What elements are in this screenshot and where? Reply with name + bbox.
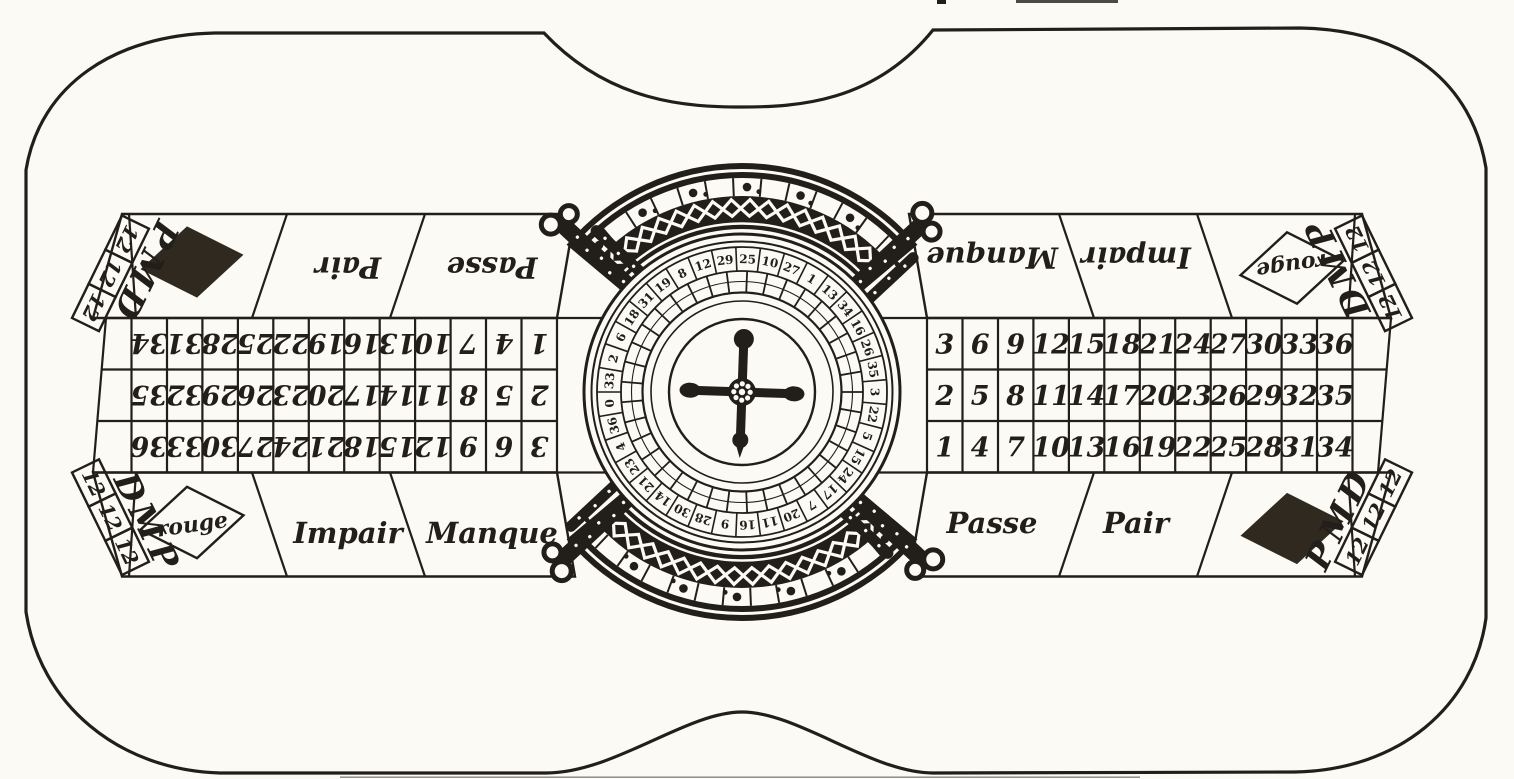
grid-number: 1 xyxy=(935,433,954,464)
pair-label: Pair xyxy=(1102,506,1172,540)
grid-number: 34 xyxy=(130,327,168,358)
betting-layout-left: 3431282522191613107413532292623201714118… xyxy=(72,202,575,588)
grid-number: 11 xyxy=(1032,381,1070,412)
grid-number: 31 xyxy=(166,327,204,358)
manque-label: Manque xyxy=(926,241,1059,275)
grid-number: 18 xyxy=(1103,330,1141,361)
grid-number: 28 xyxy=(201,327,240,358)
grid-number: 6 xyxy=(494,430,513,461)
grid-number: 7 xyxy=(1006,433,1025,464)
grid-number: 19 xyxy=(1139,433,1177,464)
impair-label: Impair xyxy=(1078,241,1191,275)
wheel-number: 33 xyxy=(602,372,617,390)
bowl-ornament-dot xyxy=(624,554,629,559)
grid-number: 3 xyxy=(935,330,954,361)
bowl-ornament-dot xyxy=(630,562,639,571)
grid-number: 8 xyxy=(1005,381,1025,412)
bowl-ornament-dot xyxy=(855,225,860,230)
grid-number: 26 xyxy=(237,379,276,410)
scan-artifact xyxy=(937,0,946,4)
grid-number: 9 xyxy=(1006,330,1025,361)
turret-arm xyxy=(755,392,786,393)
bowl-ornament-dot xyxy=(826,571,831,576)
bowl-ornament-dot xyxy=(787,587,796,596)
grid-number: 15 xyxy=(1068,330,1106,361)
grid-number: 16 xyxy=(343,327,381,358)
grid-number: 23 xyxy=(1173,381,1212,412)
bowl-ornament-dot xyxy=(703,192,708,197)
grid-number: 13 xyxy=(1068,433,1106,464)
grid-number: 16 xyxy=(1103,433,1141,464)
wheel-number: 9 xyxy=(720,516,730,531)
bowl-ornament-dot xyxy=(723,590,728,595)
grid-number: 14 xyxy=(379,379,417,410)
grid-number: 19 xyxy=(308,327,346,358)
turret-arm xyxy=(742,346,743,379)
grid-number: 27 xyxy=(1209,330,1248,361)
grid-number: 36 xyxy=(130,430,168,461)
grid-number: 3 xyxy=(530,430,549,461)
grid-number: 22 xyxy=(1173,433,1212,464)
bowl-ornament-dot xyxy=(743,183,752,192)
grid-number: 33 xyxy=(166,430,204,461)
grid-number: 31 xyxy=(1281,433,1319,464)
grid-number: 10 xyxy=(414,327,452,358)
grid-number: 25 xyxy=(1209,433,1248,464)
grid-number: 2 xyxy=(530,379,550,410)
wheel-number: 25 xyxy=(739,252,756,267)
grid-number: 20 xyxy=(308,379,347,410)
grid-number: 1 xyxy=(530,327,549,358)
turret-arm xyxy=(698,390,729,391)
grid-number: 20 xyxy=(1138,381,1177,412)
grid-number: 24 xyxy=(272,430,311,461)
roulette-table-engraving: 3431282522191613107413532292623201714118… xyxy=(0,0,1514,779)
number-pocket-divider xyxy=(736,247,737,271)
bowl-ornament-dot xyxy=(808,201,813,206)
grid-number: 9 xyxy=(459,430,478,461)
grid-number: 7 xyxy=(459,327,478,358)
bowl-ornament-dot xyxy=(689,189,698,198)
grid-number: 8 xyxy=(459,379,479,410)
bowl-cell-divider xyxy=(733,178,734,196)
scan-artifact xyxy=(340,776,1140,778)
turret-arm xyxy=(741,405,742,434)
grid-number: 22 xyxy=(272,327,311,358)
grid-number: 30 xyxy=(1245,330,1283,361)
grid-number: 25 xyxy=(237,327,276,358)
grid-number: 17 xyxy=(1103,381,1141,412)
wheel-number: 16 xyxy=(739,517,756,532)
wheel-number: 22 xyxy=(864,405,881,424)
bowl-ornament-dot xyxy=(733,593,742,602)
betting-layout-right: 3431282522191613107413532292623201714118… xyxy=(909,202,1412,588)
grid-number: 23 xyxy=(272,379,311,410)
bowl-ornament-dot xyxy=(653,208,658,213)
bowl-ornament-dot xyxy=(679,584,688,593)
number-pocket-divider xyxy=(736,513,737,537)
grid-number: 5 xyxy=(494,379,513,410)
scan-artifact xyxy=(1016,0,1118,3)
grid-number: 15 xyxy=(379,430,417,461)
grid-number: 32 xyxy=(1281,381,1319,412)
wheel-number: 0 xyxy=(602,398,617,408)
wheel-number: 3 xyxy=(868,388,882,396)
bowl-ornament-dot xyxy=(671,578,676,583)
grid-number: 21 xyxy=(1138,330,1177,361)
grid-number: 5 xyxy=(971,381,990,412)
grid-number: 29 xyxy=(1244,381,1283,412)
passe-label: Passe xyxy=(946,506,1038,540)
bowl-ornament-dot xyxy=(837,567,846,576)
grid-number: 18 xyxy=(343,430,381,461)
grid-number: 34 xyxy=(1316,433,1354,464)
grid-number: 12 xyxy=(1032,330,1070,361)
grid-number: 29 xyxy=(201,379,240,410)
grid-number: 10 xyxy=(1032,433,1070,464)
bowl-ornament-dot xyxy=(846,213,855,222)
wheel-number: 35 xyxy=(865,360,882,379)
passe-label: Passe xyxy=(447,251,539,285)
grid-number: 30 xyxy=(201,430,239,461)
grid-number: 4 xyxy=(971,433,990,464)
grid-number: 35 xyxy=(130,379,168,410)
grid-number: 36 xyxy=(1316,330,1354,361)
grid-number: 6 xyxy=(971,330,990,361)
grid-number: 17 xyxy=(343,379,381,410)
bowl-ornament-dot xyxy=(756,189,761,194)
grid-number: 13 xyxy=(379,327,417,358)
engraving-canvas: 3431282522191613107413532292623201714118… xyxy=(0,0,1514,779)
grid-number: 27 xyxy=(237,430,276,461)
grid-number: 21 xyxy=(308,430,347,461)
impair-label: Impair xyxy=(292,516,405,550)
grid-number: 2 xyxy=(934,381,954,412)
pair-label: Pair xyxy=(312,251,382,285)
manque-label: Manque xyxy=(425,516,558,550)
grid-number: 11 xyxy=(414,379,452,410)
grid-number: 32 xyxy=(166,379,204,410)
bowl-cell-divider xyxy=(750,588,751,606)
bowl-ornament-dot xyxy=(796,191,805,200)
grid-number: 14 xyxy=(1068,381,1106,412)
grid-number: 4 xyxy=(494,327,513,358)
wheel-number: 29 xyxy=(716,252,734,268)
bowl-ornament-dot xyxy=(776,587,781,592)
grid-number: 26 xyxy=(1209,381,1248,412)
grid-number: 33 xyxy=(1281,330,1319,361)
grid-number: 28 xyxy=(1244,433,1283,464)
bowl-ornament-dot xyxy=(638,208,647,217)
grid-number: 12 xyxy=(414,430,452,461)
grid-number: 24 xyxy=(1173,330,1212,361)
grid-number: 35 xyxy=(1316,381,1354,412)
